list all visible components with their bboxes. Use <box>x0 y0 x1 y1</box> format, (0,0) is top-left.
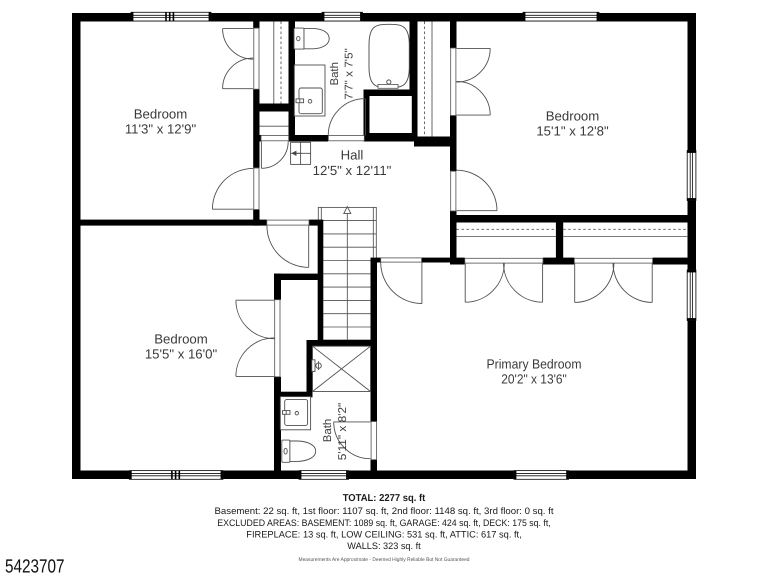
svg-text:11'3" x 12'9": 11'3" x 12'9" <box>125 122 197 137</box>
svg-text:Basement: 22 sq. ft, 1st floor: Basement: 22 sq. ft, 1st floor: 1107 sq.… <box>215 505 554 516</box>
svg-text:Bath: Bath <box>322 419 334 443</box>
svg-text:Bedroom: Bedroom <box>154 332 208 347</box>
svg-text:Hall: Hall <box>341 148 364 163</box>
svg-text:15'5" x 16'0": 15'5" x 16'0" <box>145 347 218 362</box>
svg-text:5'11" x 8'2": 5'11" x 8'2" <box>337 403 349 461</box>
svg-text:EXCLUDED AREAS: BASEMENT: 1089: EXCLUDED AREAS: BASEMENT: 1089 sq. ft, G… <box>217 517 551 528</box>
svg-text:FIREPLACE: 13 sq. ft, LOW CEIL: FIREPLACE: 13 sq. ft, LOW CEILING: 531 s… <box>246 528 521 539</box>
svg-text:Bedroom: Bedroom <box>546 109 600 124</box>
svg-text:Bath: Bath <box>329 62 341 86</box>
svg-text:5423707: 5423707 <box>5 557 65 576</box>
svg-text:12'5" x 12'11": 12'5" x 12'11" <box>313 163 392 178</box>
svg-text:20'2" x 13'6": 20'2" x 13'6" <box>501 372 567 387</box>
svg-text:Bedroom: Bedroom <box>134 107 188 122</box>
svg-text:Primary Bedroom: Primary Bedroom <box>487 357 582 372</box>
svg-text:7'7" x 7'5": 7'7" x 7'5" <box>344 48 356 100</box>
svg-text:WALLS: 323 sq. ft: WALLS: 323 sq. ft <box>347 540 421 551</box>
svg-text:TOTAL: 2277 sq. ft: TOTAL: 2277 sq. ft <box>343 493 426 504</box>
svg-text:Measurements Are Approximate -: Measurements Are Approximate - Deemed Hi… <box>299 557 470 563</box>
svg-text:15'1" x 12'8": 15'1" x 12'8" <box>536 124 609 139</box>
